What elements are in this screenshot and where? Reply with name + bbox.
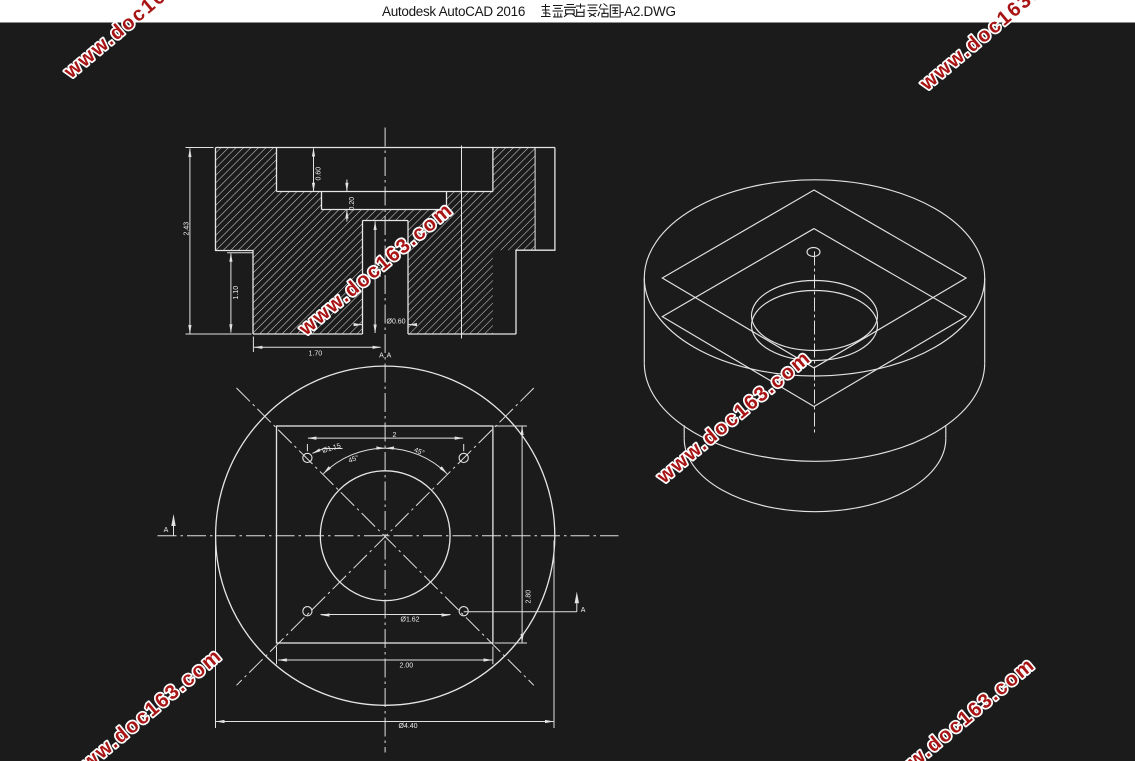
svg-text:2.80: 2.80: [526, 590, 533, 604]
svg-text:A: A: [387, 353, 392, 360]
svg-text:A: A: [379, 353, 384, 360]
svg-text:0.60: 0.60: [316, 167, 323, 181]
svg-text:A: A: [164, 527, 169, 534]
svg-text:1.10: 1.10: [233, 286, 240, 300]
svg-text:2.43: 2.43: [184, 222, 191, 236]
svg-text:Ø1.62: Ø1.62: [401, 617, 420, 624]
svg-text:Autodesk AutoCAD 2016: Autodesk AutoCAD 2016: [382, 4, 525, 19]
svg-text:Ø4.40: Ø4.40: [399, 723, 418, 730]
svg-text:-A2.DWG: -A2.DWG: [620, 4, 676, 19]
svg-text:2.00: 2.00: [400, 663, 414, 670]
svg-text:2: 2: [393, 432, 397, 439]
svg-text:1.70: 1.70: [309, 351, 323, 358]
svg-text:Ø0.60: Ø0.60: [387, 319, 406, 326]
svg-text:A: A: [581, 607, 586, 614]
svg-text:0.20: 0.20: [349, 197, 356, 211]
